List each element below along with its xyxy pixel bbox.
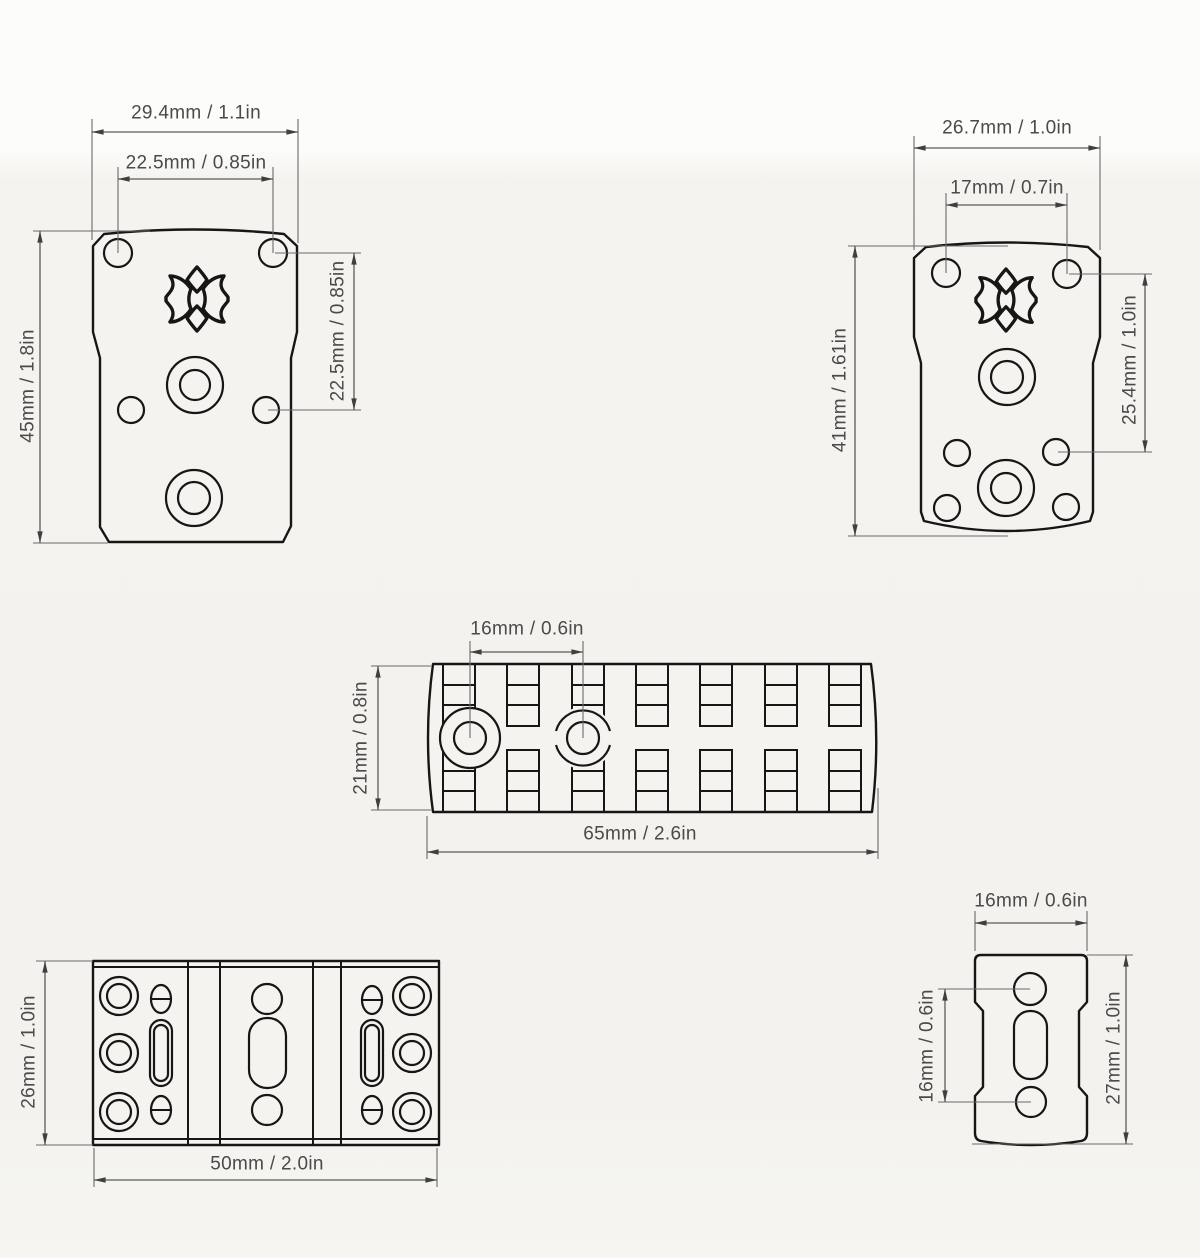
- plate-b-drawing: [914, 243, 1100, 532]
- dim-rail-height-label: 21mm / 0.8in: [352, 681, 371, 794]
- dim-small-plate-hole-spacing-label: 16mm / 0.6in: [918, 989, 937, 1102]
- dim-plate-b-hole-spacing-h-label: 17mm / 0.7in: [950, 179, 1063, 198]
- dim-base-plate-height-label: 26mm / 1.0in: [20, 995, 39, 1108]
- dim-plate-a-hole-spacing-h-label: 22.5mm / 0.85in: [126, 154, 267, 173]
- dim-plate-a-hole-spacing-v-label: 22.5mm / 0.85in: [329, 261, 348, 402]
- plate-a-drawing: [93, 230, 297, 543]
- base-plate-drawing: [93, 961, 439, 1145]
- dim-rail-hole-spacing-label: 16mm / 0.6in: [470, 620, 583, 639]
- dim-plate-b-height-label: 41mm / 1.61in: [831, 328, 850, 452]
- dim-plate-a-width-label: 29.4mm / 1.1in: [131, 104, 261, 123]
- technical-drawing-canvas: 29.4mm / 1.1in 22.5mm / 0.85in 45mm / 1.…: [0, 0, 1200, 1258]
- dim-small-plate-width-label: 16mm / 0.6in: [974, 892, 1087, 911]
- small-plate-drawing: [975, 955, 1087, 1145]
- dim-rail-width-label: 65mm / 2.6in: [583, 825, 696, 844]
- dim-plate-b-width-label: 26.7mm / 1.0in: [942, 119, 1072, 138]
- dim-small-plate-height-label: 27mm / 1.0in: [1105, 991, 1124, 1104]
- rail-drawing: [428, 664, 876, 812]
- dim-plate-b-hole-spacing-v-label: 25.4mm / 1.0in: [1121, 295, 1140, 425]
- dim-base-plate-width-label: 50mm / 2.0in: [210, 1155, 323, 1174]
- dim-plate-a-height-label: 45mm / 1.8in: [19, 329, 38, 442]
